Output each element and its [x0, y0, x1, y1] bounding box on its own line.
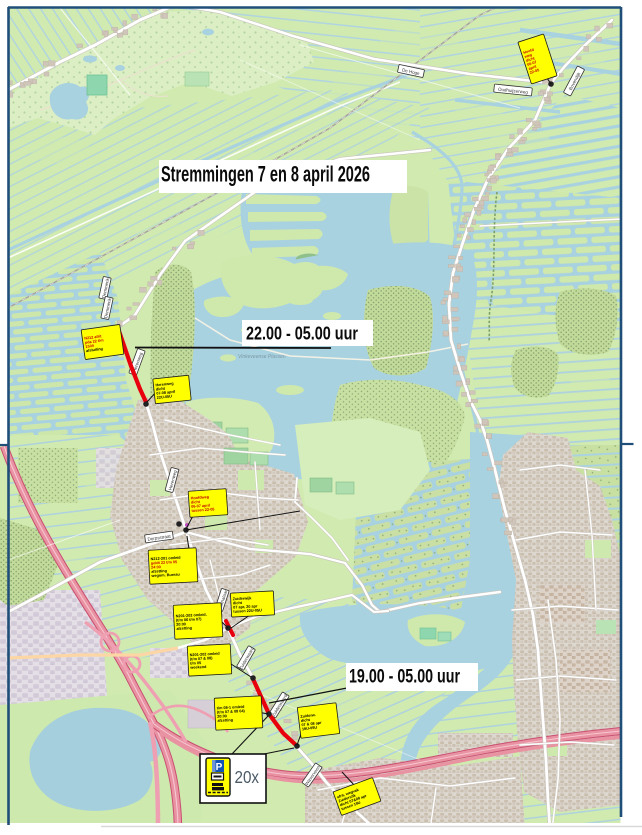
- svg-text:afzetting: afzetting: [176, 626, 192, 631]
- svg-text:Vinkeveense Plassen: Vinkeveense Plassen: [238, 354, 286, 360]
- svg-text:Stremmingen 7 en 8 april 2026: Stremmingen 7 en 8 april 2026: [161, 162, 370, 187]
- svg-text:P: P: [216, 762, 223, 773]
- svg-text:19.00 - 05.00 uur: 19.00 - 05.00 uur: [349, 667, 460, 688]
- svg-text:22.00 - 05.00 uur: 22.00 - 05.00 uur: [246, 323, 358, 344]
- svg-text:20x: 20x: [235, 767, 260, 787]
- svg-text:afzetting: afzetting: [217, 718, 233, 723]
